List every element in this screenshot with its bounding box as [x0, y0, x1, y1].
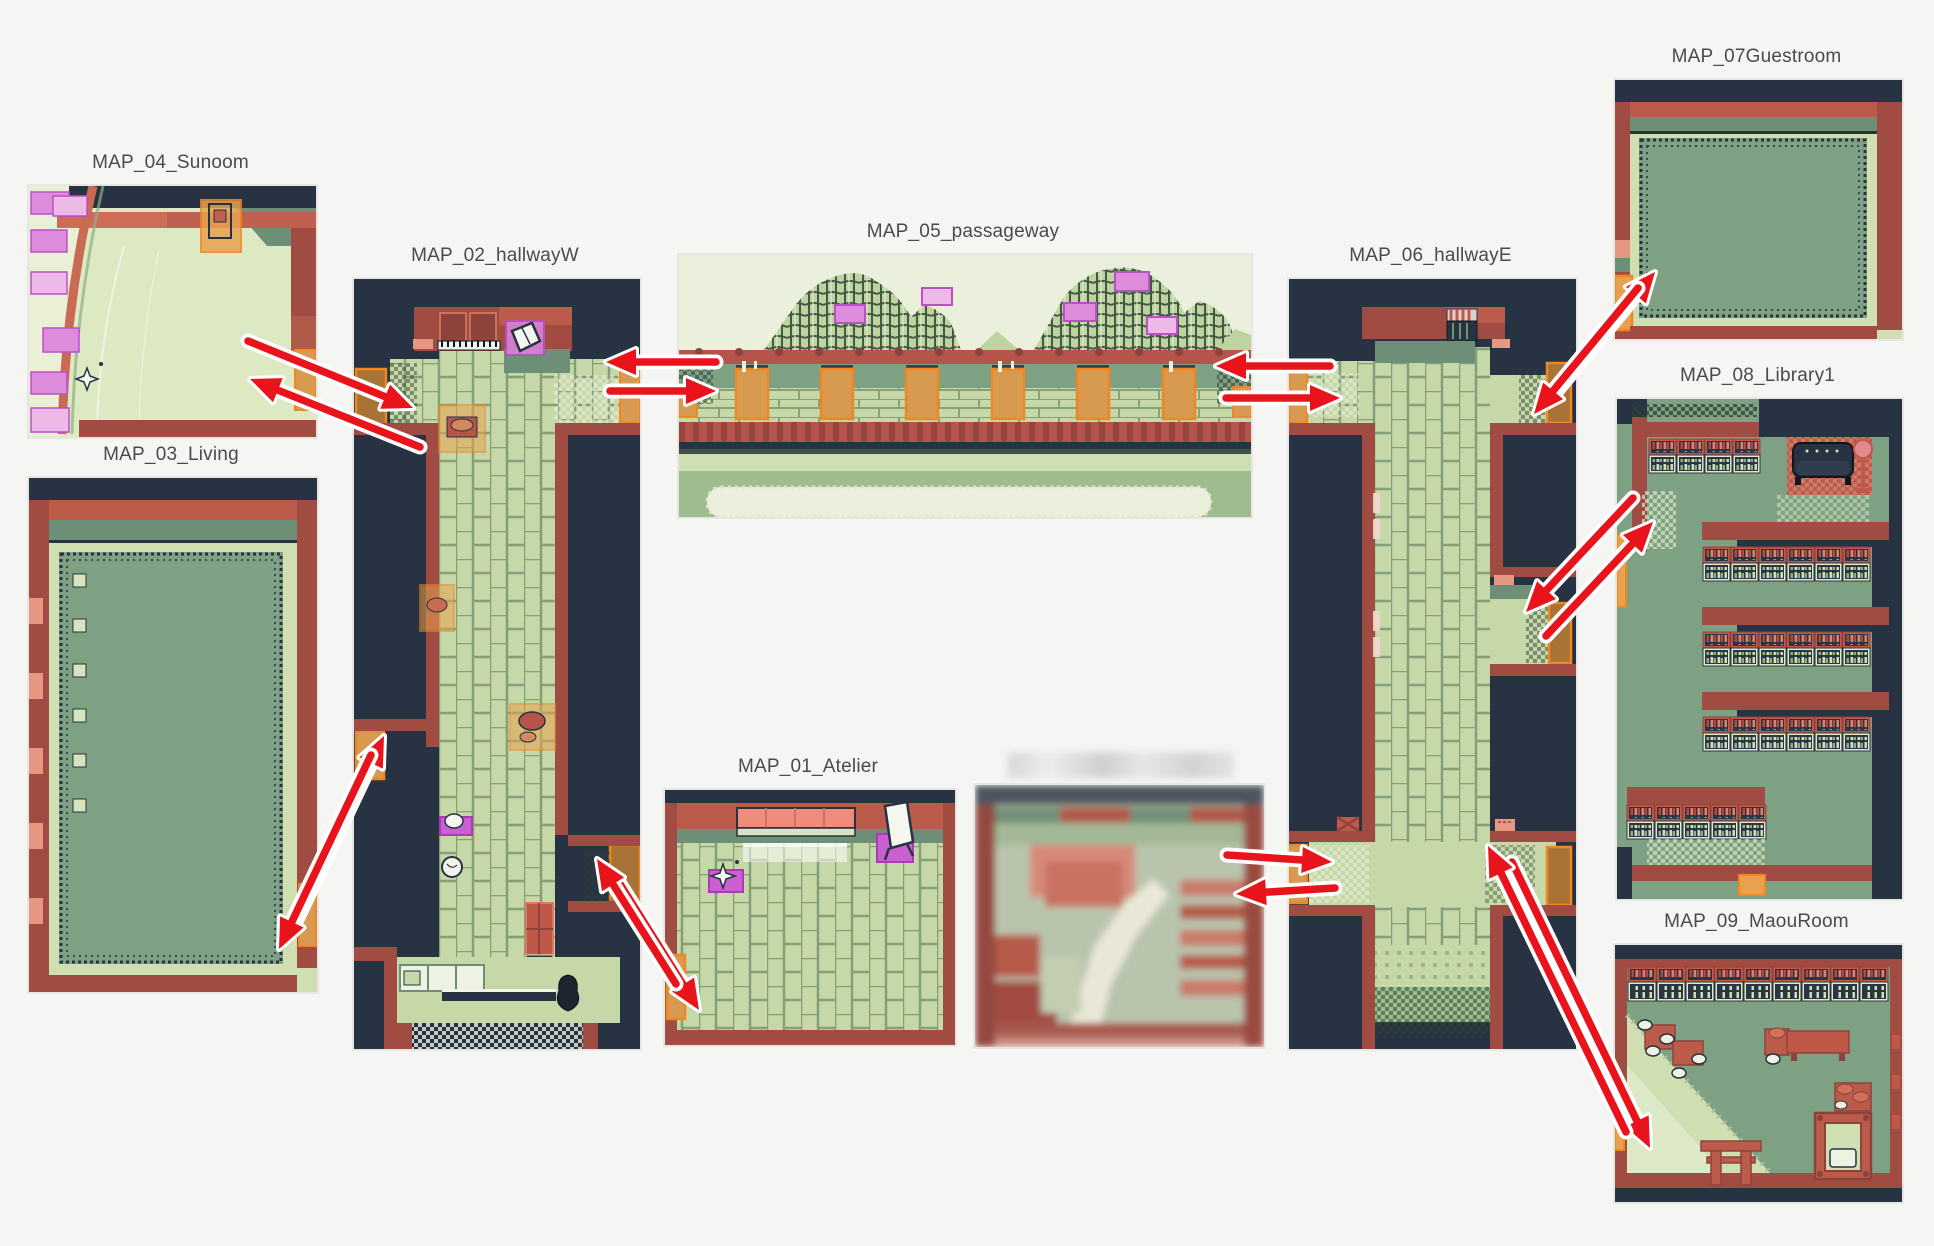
- hallwayW-left-lower-door: [356, 731, 384, 779]
- maou-left-door: [1615, 1084, 1624, 1150]
- map-panel-atelier: [663, 788, 957, 1047]
- map-label-sunoom: MAP_04_Sunoom: [27, 152, 314, 176]
- map-label-passageway: MAP_05_passageway: [677, 221, 1249, 245]
- hallwayW-left-top-door: [356, 369, 386, 425]
- living-right-door: [299, 884, 316, 946]
- map-panel-censored: [973, 783, 1266, 1049]
- map-label-library1: MAP_08_Library1: [1615, 365, 1900, 389]
- map-connection-diagram: MAP_04_Sunoom MAP_03_Living MAP_02_hallw…: [0, 0, 1934, 1246]
- hallwayE-right-bottom-door: [1547, 847, 1571, 905]
- ornate-frame: [1815, 1113, 1871, 1179]
- library-left-door: [1617, 534, 1626, 607]
- map-panel-library1: [1615, 397, 1904, 901]
- map-label-living: MAP_03_Living: [27, 444, 315, 468]
- map-panel-hallwayW: [352, 277, 642, 1051]
- censored-map-mosaic: [975, 785, 1264, 1047]
- library-bottom-door: [1739, 875, 1765, 895]
- living-carpet: [59, 552, 283, 964]
- map-panel-living: [27, 476, 319, 994]
- map-panel-sunoom: [27, 184, 318, 439]
- censored-map-label: [1008, 752, 1234, 778]
- hallwayE-right-mid-door: [1549, 603, 1571, 663]
- map-label-maouroom: MAP_09_MaouRoom: [1613, 911, 1900, 935]
- atelier-left-door: [667, 955, 685, 1019]
- map-panel-maouroom: [1613, 943, 1904, 1204]
- passageway-east-exit: [1233, 387, 1251, 417]
- map-label-hallwayE: MAP_06_hallwayE: [1287, 245, 1574, 269]
- hallwayE-left-bottom-door: [1289, 845, 1307, 903]
- sunoom-right-door: [295, 350, 316, 410]
- hallwayE-left-top-door: [1289, 363, 1307, 423]
- map-panel-hallwayE: [1287, 277, 1578, 1051]
- hallwayW-right-top-door: [620, 371, 640, 423]
- map-panel-passageway: [677, 253, 1253, 519]
- atelier-table: [737, 808, 855, 836]
- passageway-west-exit: [679, 387, 697, 417]
- book-icon: [506, 321, 544, 355]
- map-label-atelier: MAP_01_Atelier: [663, 756, 953, 780]
- map-label-hallwayW: MAP_02_hallwayW: [352, 245, 638, 269]
- hallwayW-right-lower-door: [610, 845, 640, 903]
- wall-grate: [1447, 309, 1477, 341]
- map-label-guestroom: MAP_07Guestroom: [1613, 46, 1900, 70]
- hallwayE-right-top-door: [1547, 363, 1571, 423]
- sunoom-top-door: [201, 200, 241, 252]
- guestroom-left-door: [1615, 276, 1632, 330]
- guestroom-carpet: [1639, 138, 1867, 318]
- map-panel-guestroom: [1613, 78, 1904, 341]
- mushroom-cluster: [1835, 1083, 1871, 1111]
